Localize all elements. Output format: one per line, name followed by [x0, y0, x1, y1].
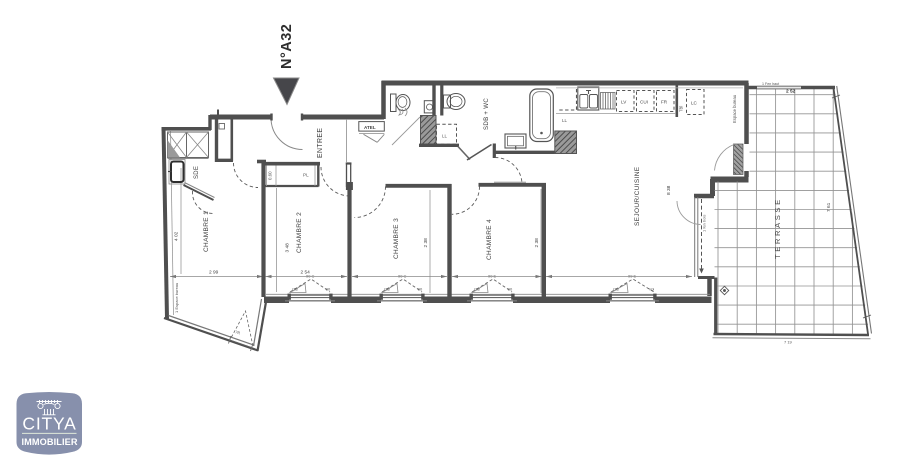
svg-text:'Vol: 'Vol [648, 287, 654, 292]
svg-text:(38: (38 [292, 287, 299, 292]
svg-text:PL: PL [303, 173, 309, 178]
svg-text:99 E: 99 E [628, 274, 637, 279]
svg-text:TBl: TBl [679, 106, 684, 112]
svg-text:LL: LL [442, 134, 447, 139]
svg-text:CHAMBRE 3: CHAMBRE 3 [393, 218, 400, 259]
svg-text:LV: LV [621, 100, 627, 105]
svg-text:'90: '90 [507, 287, 513, 292]
svg-text:2 38: 2 38 [534, 238, 540, 248]
svg-text:Espace bureau: Espace bureau [732, 94, 737, 123]
svg-text:7 61: 7 61 [826, 202, 832, 212]
svg-text:FR: FR [661, 100, 668, 105]
svg-text:SEJOUR/CUISINE: SEJOUR/CUISINE [634, 166, 641, 226]
svg-text:1 Fen haut: 1 Fen haut [762, 82, 779, 86]
svg-text:SDE: SDE [194, 166, 200, 179]
svg-text:ENTREE: ENTREE [317, 128, 324, 158]
svg-text:3 48: 3 48 [285, 243, 291, 253]
svg-text:IMMOBILIER: IMMOBILIER [21, 437, 77, 447]
svg-text:LC: LC [691, 101, 698, 106]
svg-text:TERRASSE: TERRASSE [773, 197, 782, 259]
svg-text:SDB + WC: SDB + WC [483, 98, 490, 130]
svg-text:CUI: CUI [640, 100, 648, 105]
svg-text:90 C: 90 C [398, 274, 407, 279]
svg-text:'90: '90 [325, 287, 331, 292]
svg-text:CHAMBRE 4: CHAMBRE 4 [486, 219, 493, 260]
svg-text:CHAMBRE 2: CHAMBRE 2 [296, 212, 303, 253]
svg-text:LL: LL [562, 118, 567, 123]
svg-text:CHAMBRE 1: CHAMBRE 1 [203, 211, 210, 252]
svg-text:CITYA: CITYA [22, 414, 76, 434]
svg-text:2 52: 2 52 [786, 89, 796, 95]
svg-text:2 99: 2 99 [209, 270, 219, 276]
svg-text:N°A32: N°A32 [279, 24, 295, 69]
svg-text:(38: (38 [613, 287, 620, 292]
svg-text:7R: 7R [235, 330, 241, 335]
svg-text:1 fen bois: 1 fen bois [702, 215, 707, 232]
svg-text:'90: '90 [417, 287, 423, 292]
svg-text:2 38: 2 38 [423, 238, 429, 248]
svg-text:1 Espace bureau: 1 Espace bureau [174, 283, 179, 313]
svg-text:8 38: 8 38 [666, 185, 672, 195]
svg-text:90 E: 90 E [488, 274, 497, 279]
svg-text:(38: (38 [384, 287, 391, 292]
svg-text:4 02: 4 02 [174, 231, 180, 241]
svg-text:2 54: 2 54 [301, 270, 311, 276]
svg-text:ATEL: ATEL [364, 125, 376, 130]
svg-text:7 19: 7 19 [784, 340, 793, 345]
svg-text:(38: (38 [474, 287, 481, 292]
svg-text:0.60: 0.60 [268, 171, 273, 180]
